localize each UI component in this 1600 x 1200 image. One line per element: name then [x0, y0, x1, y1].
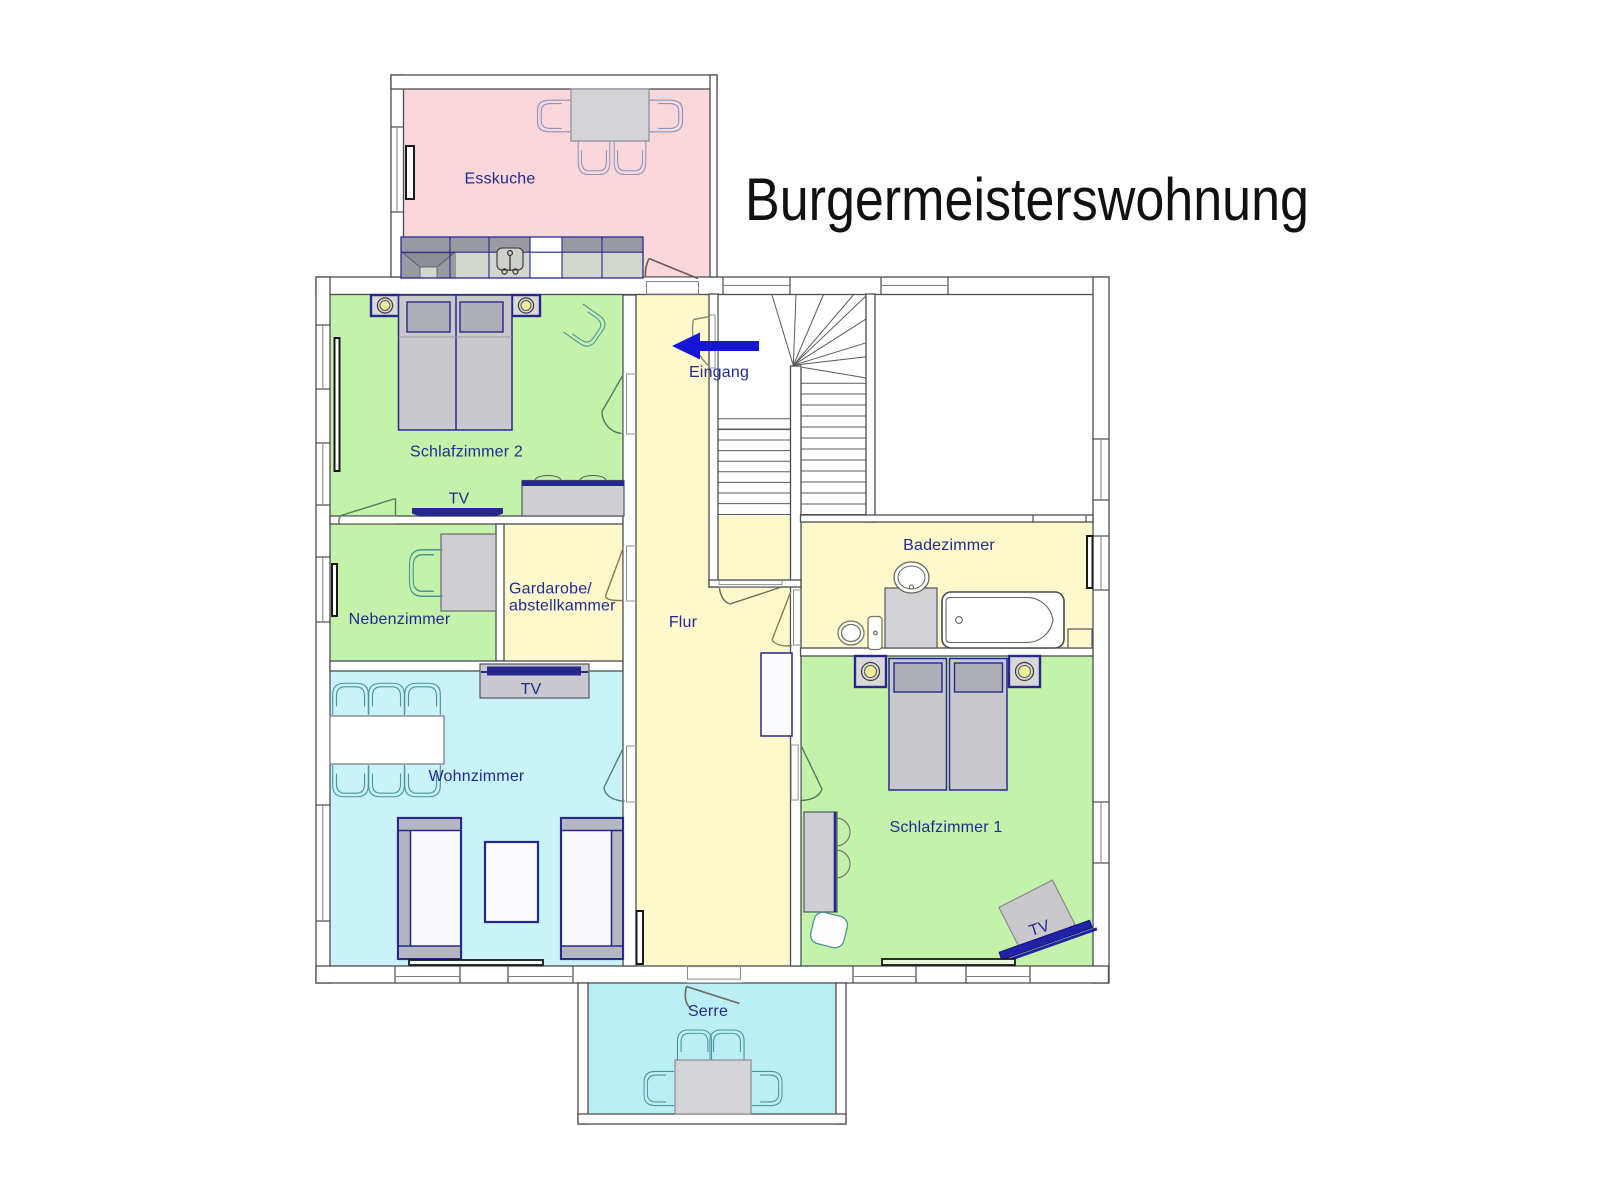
svg-text:Gardarobe/: Gardarobe/ [509, 581, 592, 598]
svg-text:abstellkammer: abstellkammer [509, 598, 616, 615]
svg-text:Flur: Flur [669, 614, 698, 631]
svg-text:TV: TV [521, 681, 542, 698]
svg-text:Burgermeisterswohnung: Burgermeisterswohnung [745, 166, 1309, 233]
svg-text:Esskuche: Esskuche [465, 171, 536, 188]
svg-text:TV: TV [449, 491, 470, 508]
svg-text:Wohnzimmer: Wohnzimmer [429, 768, 525, 785]
svg-text:Schlafzimmer 1: Schlafzimmer 1 [889, 819, 1002, 836]
svg-text:Eingang: Eingang [689, 364, 749, 381]
svg-text:Serre: Serre [688, 1003, 728, 1020]
svg-text:Nebenzimmer: Nebenzimmer [349, 611, 451, 628]
svg-text:Schlafzimmer 2: Schlafzimmer 2 [410, 444, 523, 461]
svg-text:Badezimmer: Badezimmer [903, 537, 995, 554]
